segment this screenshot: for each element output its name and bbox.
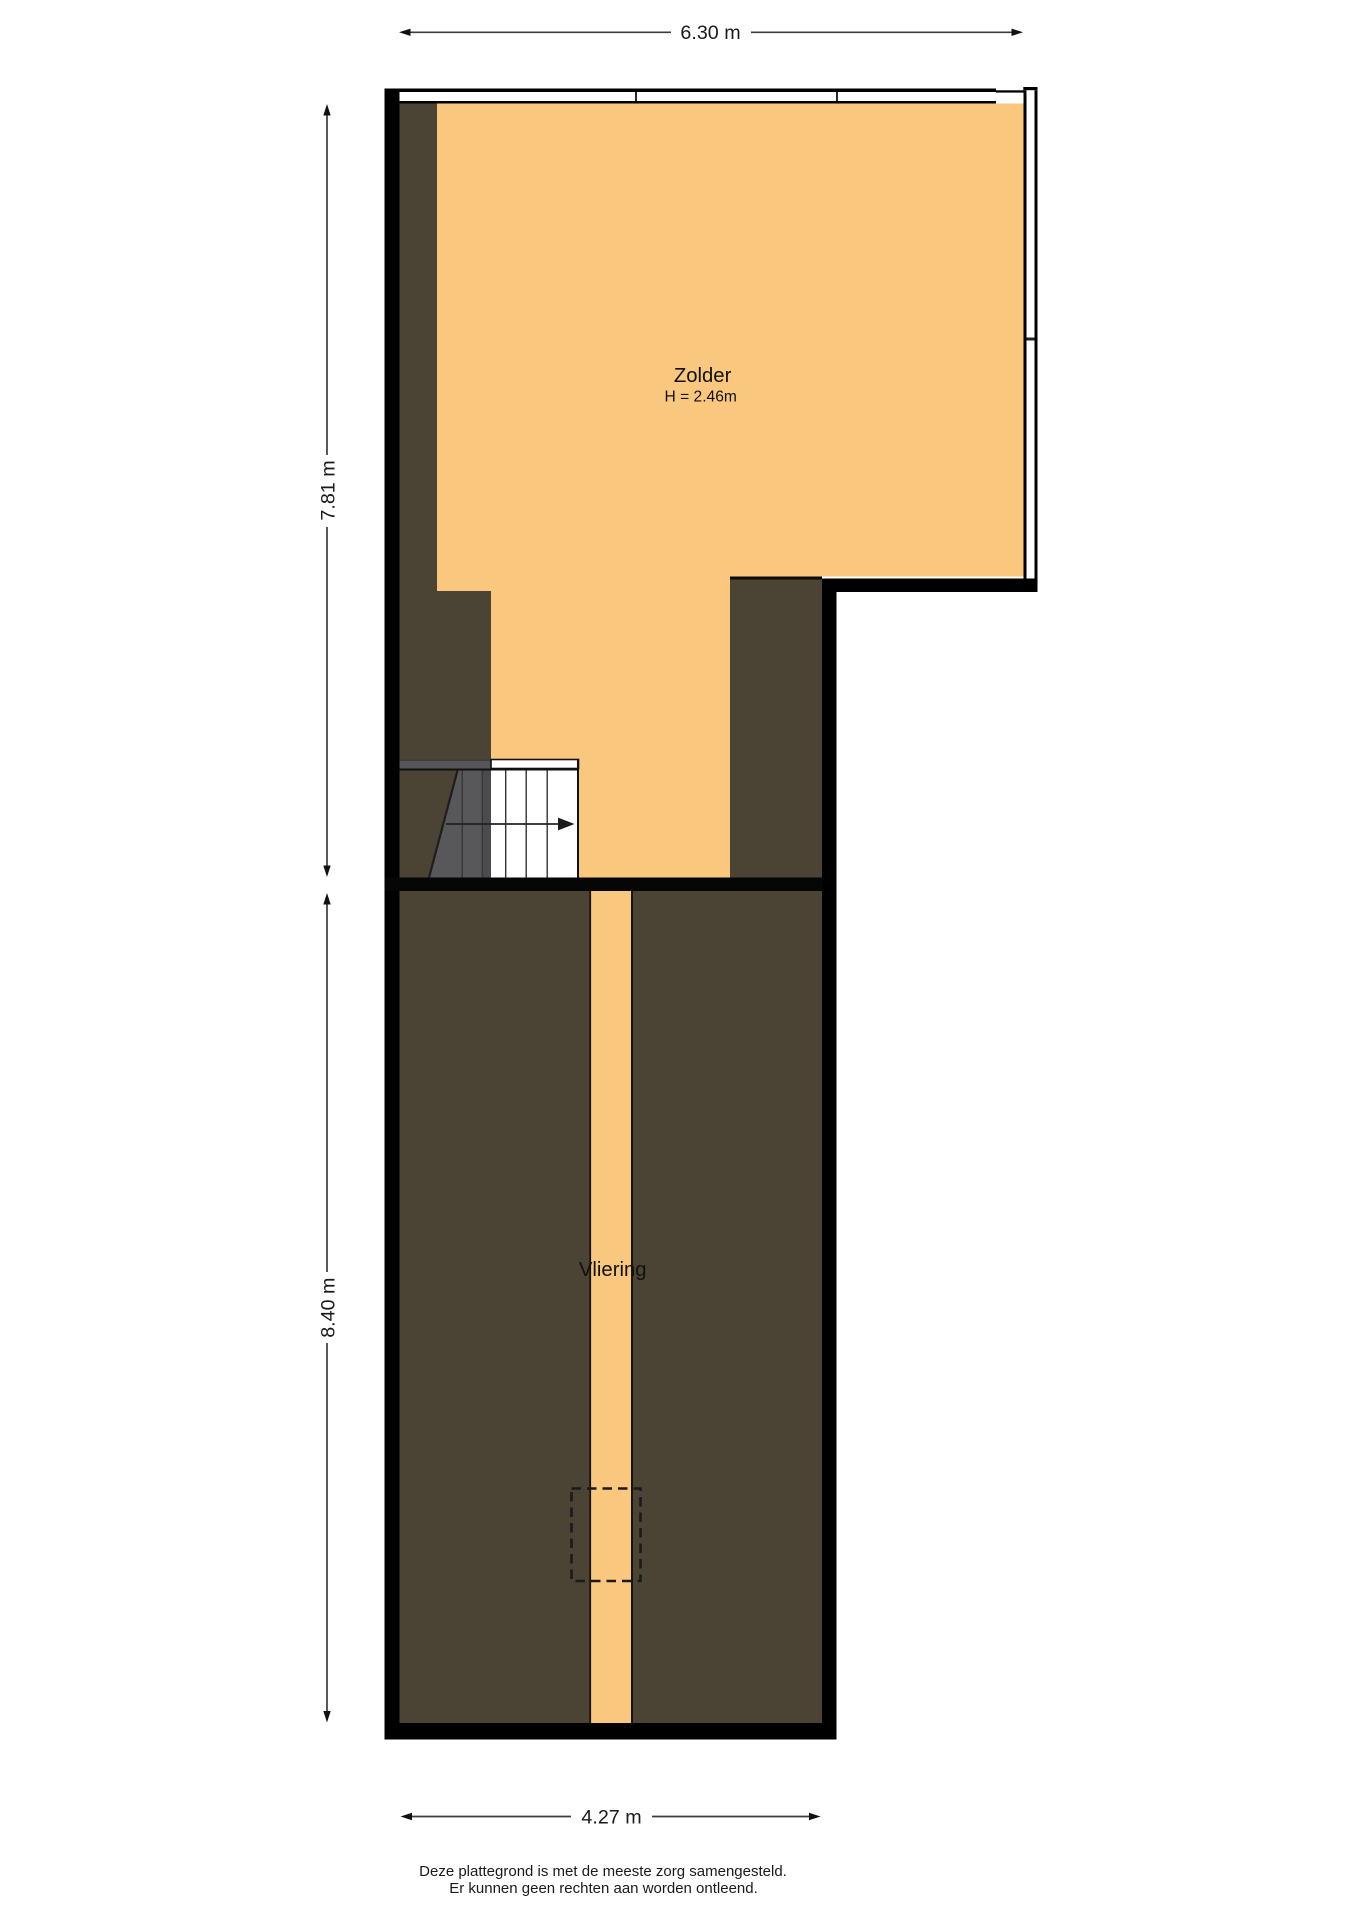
svg-text:7.81 m: 7.81 m: [317, 460, 339, 520]
svg-text:Zolder: Zolder: [674, 365, 732, 387]
svg-text:Er kunnen geen rechten aan wor: Er kunnen geen rechten aan worden ontlee…: [449, 1880, 758, 1897]
svg-text:8.40 m: 8.40 m: [317, 1278, 339, 1338]
svg-text:4.27 m: 4.27 m: [581, 1806, 641, 1828]
svg-text:Deze plattegrond is met de mee: Deze plattegrond is met de meeste zorg s…: [419, 1863, 787, 1880]
svg-text:Vliering: Vliering: [579, 1259, 647, 1281]
svg-text:6.30 m: 6.30 m: [680, 22, 740, 44]
svg-text:H = 2.46m: H = 2.46m: [665, 389, 737, 406]
